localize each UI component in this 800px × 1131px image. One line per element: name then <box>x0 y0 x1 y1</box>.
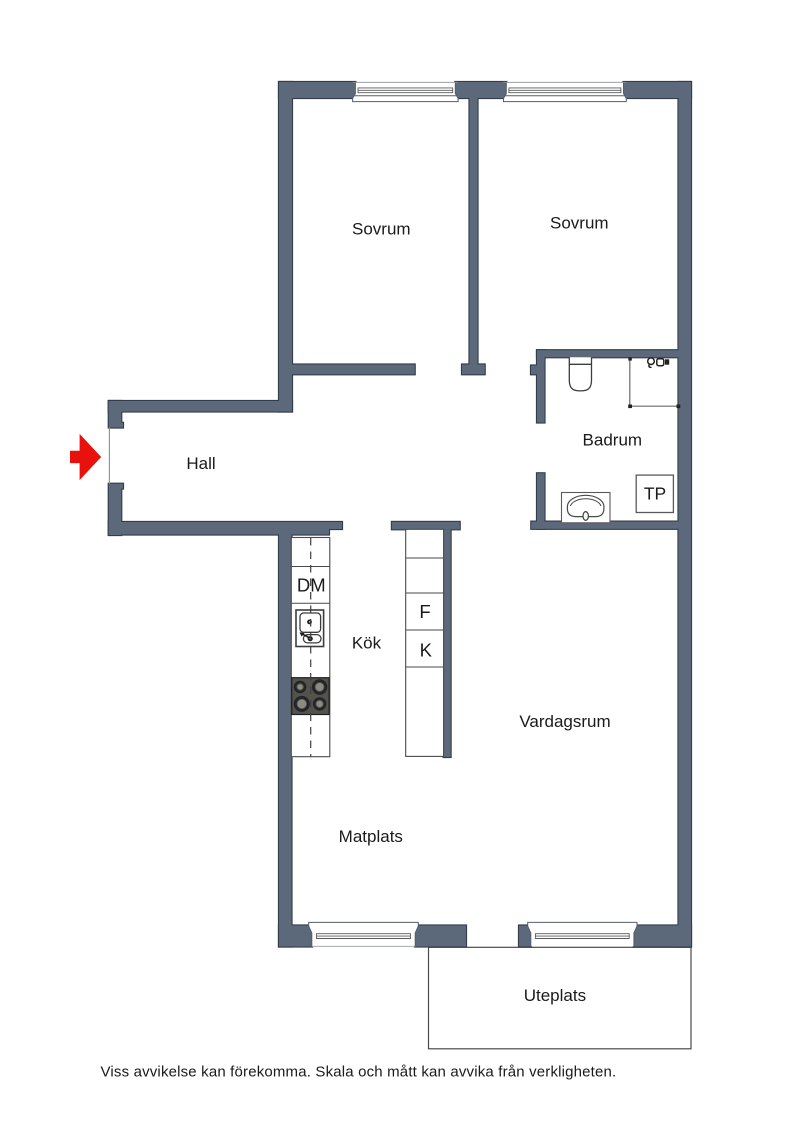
svg-text:K: K <box>420 639 433 660</box>
svg-text:Viss avvikelse kan förekomma.: Viss avvikelse kan förekomma. Skala och … <box>101 1063 617 1080</box>
svg-text:Matplats: Matplats <box>339 827 403 846</box>
svg-text:F: F <box>419 601 430 622</box>
svg-text:Vardagsrum: Vardagsrum <box>519 712 610 731</box>
svg-text:Hall: Hall <box>186 454 215 473</box>
svg-text:TP: TP <box>644 484 666 504</box>
svg-text:Badrum: Badrum <box>583 431 643 450</box>
svg-text:Sovrum: Sovrum <box>352 220 411 239</box>
svg-text:Kök: Kök <box>352 633 382 652</box>
svg-text:Uteplats: Uteplats <box>524 986 586 1005</box>
svg-text:DM: DM <box>297 575 326 596</box>
svg-text:Sovrum: Sovrum <box>550 214 609 233</box>
